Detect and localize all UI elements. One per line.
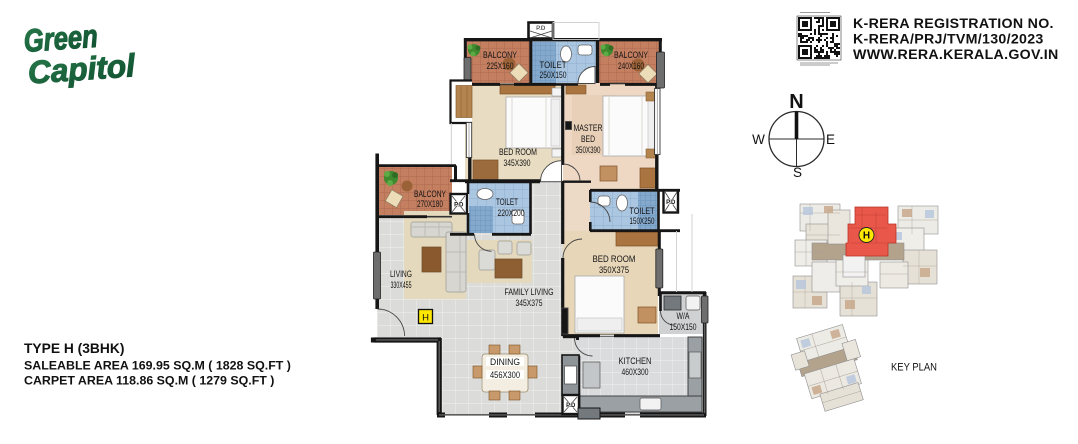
svg-text:330X455: 330X455 [391, 280, 412, 290]
svg-text:BED ROOM: BED ROOM [499, 147, 537, 157]
svg-text:BALCONY: BALCONY [614, 50, 648, 60]
svg-text:P.D: P.D [536, 26, 546, 32]
svg-text:240X160: 240X160 [618, 61, 644, 71]
svg-text:KEY PLAN: KEY PLAN [891, 362, 937, 374]
svg-text:TOILET: TOILET [496, 197, 518, 207]
svg-text:W: W [752, 132, 765, 147]
svg-text:460X300: 460X300 [622, 367, 649, 377]
svg-text:P.D: P.D [566, 403, 576, 409]
svg-text:E: E [826, 132, 835, 147]
svg-text:225X160: 225X160 [487, 61, 514, 71]
svg-text:345X390: 345X390 [504, 158, 531, 168]
svg-text:P.D: P.D [454, 203, 464, 209]
svg-text:CARPET AREA 118.86 SQ.M ( 127: CARPET AREA 118.86 SQ.M ( 1279 SQ.FT ) [24, 374, 274, 388]
svg-text:250X150: 250X150 [540, 70, 567, 80]
svg-text:BED: BED [581, 134, 595, 144]
svg-text:K-RERA/PRJ/TVM/130/2023: K-RERA/PRJ/TVM/130/2023 [853, 32, 1044, 48]
svg-text:FAMILY LIVING: FAMILY LIVING [505, 287, 554, 297]
svg-text:DINING: DINING [490, 357, 520, 367]
svg-text:H: H [422, 312, 429, 323]
svg-text:WWW.RERA.KERALA.GOV.IN: WWW.RERA.KERALA.GOV.IN [853, 47, 1059, 63]
svg-text:H: H [863, 231, 870, 242]
svg-text:TOILET: TOILET [630, 206, 656, 216]
svg-text:BALCONY: BALCONY [483, 50, 517, 60]
svg-text:S: S [793, 165, 802, 180]
svg-text:220X200: 220X200 [498, 208, 525, 218]
svg-text:150X250: 150X250 [630, 216, 655, 226]
svg-text:P.D: P.D [666, 200, 676, 206]
svg-text:LIVING: LIVING [390, 269, 412, 279]
svg-text:TYPE H (3BHK): TYPE H (3BHK) [24, 341, 124, 356]
svg-text:BALCONY: BALCONY [414, 189, 446, 199]
svg-text:SALEABLE AREA 169.95 SQ.M ( 18: SALEABLE AREA 169.95 SQ.M ( 1828 SQ.FT ) [24, 359, 291, 373]
svg-text:KITCHEN: KITCHEN [619, 356, 652, 366]
svg-text:K-RERA REGISTRATION NO.: K-RERA REGISTRATION NO. [853, 16, 1054, 32]
svg-text:350X375: 350X375 [599, 265, 629, 275]
svg-text:TOILET: TOILET [540, 60, 568, 70]
svg-text:270X180: 270X180 [417, 199, 443, 209]
svg-text:MASTER: MASTER [574, 123, 603, 133]
svg-text:N: N [789, 91, 803, 113]
svg-text:345X375: 345X375 [516, 298, 543, 308]
svg-text:350X390: 350X390 [576, 145, 601, 155]
svg-text:Capitol: Capitol [27, 47, 137, 90]
svg-text:BED ROOM: BED ROOM [593, 254, 636, 264]
svg-text:W/A: W/A [677, 311, 690, 321]
svg-text:456X300: 456X300 [490, 370, 520, 380]
svg-text:150X150: 150X150 [670, 322, 697, 332]
